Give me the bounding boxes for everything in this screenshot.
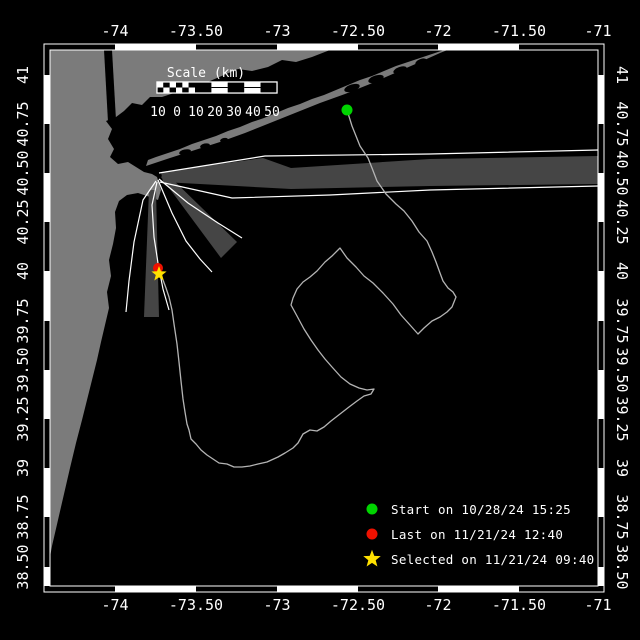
scalebar-tick-label: 0 [173, 105, 181, 120]
lat-tick-label-right: 41 [613, 66, 631, 84]
lat-tick-label-left: 40.25 [14, 199, 32, 244]
lat-tick-label-left: 40.50 [14, 150, 32, 195]
lat-tick-label-left: 39.50 [14, 347, 32, 392]
legend-last-label: Last on 11/21/24 12:40 [391, 527, 563, 542]
lon-tick-label-top: -72.50 [331, 22, 385, 40]
lat-tick-label-right: 38.75 [613, 494, 631, 539]
scalebar-tick-label: 10 [150, 105, 166, 120]
map-svg[interactable]: -74-74-73.50-73.50-73-73-72.50-72.50-72-… [0, 0, 640, 640]
lon-tick-label-bottom: -71 [584, 596, 611, 614]
legend-start-dot-icon [367, 504, 378, 515]
lon-tick-label-top: -71.50 [492, 22, 546, 40]
lat-tick-label-left: 40 [14, 262, 32, 280]
scalebar-tick-label: 30 [226, 105, 242, 120]
legend-last-dot-icon [367, 529, 378, 540]
scalebar-tick-label: 20 [207, 105, 223, 120]
lat-tick-label-left: 41 [14, 66, 32, 84]
legend-row-selected: Selected on 11/21/24 09:40 [363, 550, 594, 567]
lat-tick-label-left: 39 [14, 459, 32, 477]
lat-tick-label-right: 38.50 [613, 544, 631, 589]
lat-tick-label-left: 38.50 [14, 544, 32, 589]
lon-tick-label-top: -73 [263, 22, 290, 40]
lon-tick-label-bottom: -74 [101, 596, 128, 614]
lon-tick-label-top: -71 [584, 22, 611, 40]
lat-tick-label-left: 38.75 [14, 494, 32, 539]
legend: Start on 10/28/24 15:25 Last on 11/21/24… [363, 502, 594, 567]
legend-row-last: Last on 11/21/24 12:40 [367, 527, 564, 542]
scalebar-tick-label: 10 [188, 105, 204, 120]
scalebar-title: Scale (km) [167, 66, 245, 81]
legend-selected-label: Selected on 11/21/24 09:40 [391, 552, 594, 567]
lat-tick-label-right: 39.50 [613, 347, 631, 392]
lat-tick-label-right: 40.50 [613, 150, 631, 195]
lon-tick-label-bottom: -73 [263, 596, 290, 614]
lon-tick-label-bottom: -72 [424, 596, 451, 614]
lat-tick-label-left: 40.75 [14, 101, 32, 146]
lat-tick-label-left: 39.25 [14, 396, 32, 441]
lon-tick-label-bottom: -71.50 [492, 596, 546, 614]
lat-tick-label-left: 39.75 [14, 298, 32, 343]
lon-tick-label-bottom: -73.50 [169, 596, 223, 614]
lon-tick-label-top: -73.50 [169, 22, 223, 40]
lat-tick-label-right: 40.75 [613, 101, 631, 146]
scalebar-tick-label: 40 [245, 105, 261, 120]
start-position-marker[interactable] [342, 105, 353, 116]
lat-tick-label-right: 40.25 [613, 199, 631, 244]
scalebar-tick-label: 50 [264, 105, 280, 120]
lat-tick-label-right: 39.25 [613, 396, 631, 441]
lat-tick-label-right: 39 [613, 459, 631, 477]
lat-tick-label-right: 40 [613, 262, 631, 280]
lon-tick-label-top: -72 [424, 22, 451, 40]
legend-start-label: Start on 10/28/24 15:25 [391, 502, 571, 517]
lat-tick-label-right: 39.75 [613, 298, 631, 343]
lon-tick-label-top: -74 [101, 22, 128, 40]
legend-row-start: Start on 10/28/24 15:25 [367, 502, 572, 517]
lon-tick-label-bottom: -72.50 [331, 596, 385, 614]
glider-track-map-window: -74-74-73.50-73.50-73-73-72.50-72.50-72-… [0, 0, 640, 640]
